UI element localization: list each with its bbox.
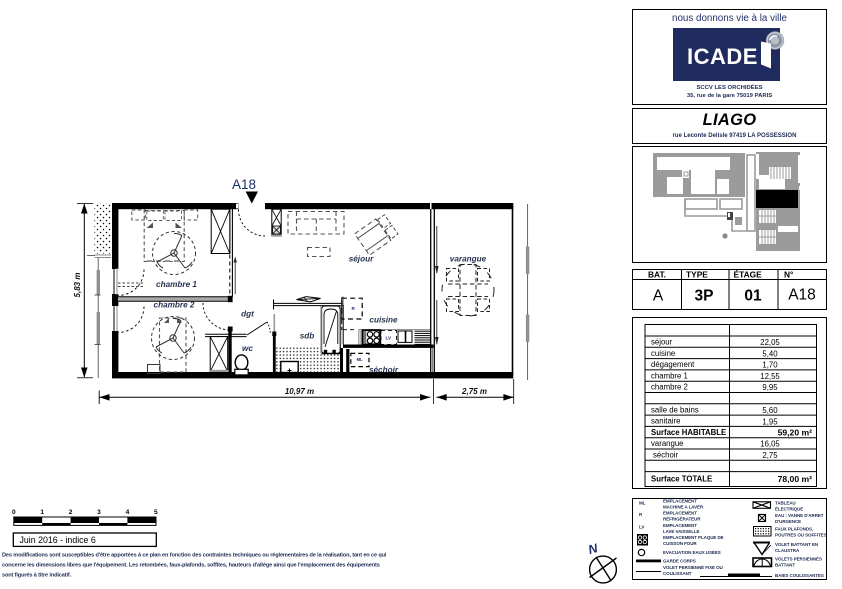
svg-text:sanitaire: sanitaire [651, 417, 680, 426]
svg-text:BAIES COULISSANTES: BAIES COULISSANTES [775, 573, 824, 578]
svg-text:R: R [352, 306, 356, 311]
svg-text:22,05: 22,05 [760, 338, 780, 347]
svg-text:séchoir: séchoir [653, 451, 679, 460]
svg-text:Des modifications sont suscept: Des modifications sont susceptibles d'êt… [2, 553, 387, 559]
svg-text:A18: A18 [788, 287, 816, 304]
svg-text:LAVE VAISSELLE: LAVE VAISSELLE [663, 529, 700, 534]
svg-text:R: R [639, 512, 643, 517]
svg-text:chambre 2: chambre 2 [651, 383, 688, 392]
svg-text:EVACUATION EAUX USÉES: EVACUATION EAUX USÉES [663, 548, 721, 555]
svg-text:chambre 2: chambre 2 [154, 301, 195, 310]
svg-text:ML: ML [357, 357, 363, 362]
svg-text:9,95: 9,95 [762, 383, 778, 392]
svg-text:1,95: 1,95 [762, 417, 778, 426]
svg-text:BATTANT: BATTANT [775, 563, 795, 568]
svg-text:2,75: 2,75 [762, 451, 778, 460]
svg-text:EAU : VANNE D'ARRET: EAU : VANNE D'ARRET [775, 513, 824, 518]
svg-text:3P: 3P [695, 288, 714, 305]
svg-text:varangue: varangue [651, 439, 684, 448]
svg-text:wc: wc [242, 344, 253, 353]
svg-text:concerne les dimensions libres: concerne les dimensions libres que l'équ… [2, 563, 380, 569]
svg-text:chambre 1: chambre 1 [651, 371, 688, 380]
svg-text:EMPLACEMENT PLAQUE DE: EMPLACEMENT PLAQUE DE [663, 535, 724, 540]
svg-text:Surface HABITABLE: Surface HABITABLE [651, 428, 726, 437]
svg-text:LV: LV [386, 336, 392, 341]
svg-text:N°: N° [784, 270, 793, 280]
svg-text:3: 3 [97, 509, 101, 516]
svg-text:salle de bains: salle de bains [651, 405, 699, 414]
svg-text:Juin 2016 - indice 6: Juin 2016 - indice 6 [20, 535, 96, 545]
svg-text:N: N [587, 541, 600, 557]
svg-text:D'URGENCE: D'URGENCE [775, 519, 801, 524]
svg-text:TABLEAU: TABLEAU [775, 501, 796, 506]
svg-text:16,05: 16,05 [760, 440, 780, 449]
svg-text:GARDE CORPS: GARDE CORPS [663, 559, 696, 564]
svg-text:A18: A18 [232, 177, 256, 192]
svg-text:5,60: 5,60 [762, 406, 778, 415]
svg-text:EMPLACEMENT: EMPLACEMENT [663, 510, 697, 515]
svg-text:séchoir: séchoir [369, 366, 399, 375]
svg-text:5: 5 [154, 509, 158, 516]
svg-text:FAUX PLAFONDS,: FAUX PLAFONDS, [775, 527, 813, 532]
svg-text:01: 01 [744, 288, 762, 305]
svg-text:4: 4 [126, 509, 130, 516]
svg-text:VOLETS PERSIENNÉS: VOLETS PERSIENNÉS [775, 555, 822, 562]
svg-text:sont figurés à titre indicatif: sont figurés à titre indicatif. [2, 573, 72, 579]
svg-text:1,70: 1,70 [762, 361, 778, 370]
svg-text:12,55: 12,55 [760, 372, 780, 381]
svg-text:EMPLACEMENT: EMPLACEMENT [663, 499, 697, 504]
svg-text:EMPLACEMENT: EMPLACEMENT [663, 523, 697, 528]
svg-text:VOLET BATTANT EN: VOLET BATTANT EN [775, 542, 818, 547]
svg-text:ÉLECTRIQUE: ÉLECTRIQUE [775, 505, 803, 512]
svg-text:CLAUSTRA: CLAUSTRA [775, 548, 800, 553]
svg-text:séjour: séjour [651, 338, 673, 347]
svg-text:5,83 m: 5,83 m [73, 273, 82, 298]
svg-text:MACHINE A LAVER: MACHINE A LAVER [663, 505, 704, 510]
svg-text:1: 1 [40, 509, 44, 516]
svg-text:A: A [653, 288, 664, 305]
svg-text:10,97 m: 10,97 m [285, 387, 314, 396]
svg-text:78,00 m²: 78,00 m² [778, 474, 813, 484]
svg-text:dégagement: dégagement [651, 360, 695, 369]
svg-text:2,75 m: 2,75 m [461, 387, 487, 396]
svg-text:CUISSON FOUR: CUISSON FOUR [663, 541, 697, 546]
svg-text:cuisine: cuisine [651, 349, 675, 358]
svg-text:2: 2 [69, 509, 73, 516]
svg-text:sdb: sdb [300, 332, 315, 341]
svg-text:0: 0 [12, 509, 16, 516]
svg-text:varangue: varangue [450, 255, 487, 264]
svg-text:5,40: 5,40 [762, 349, 778, 358]
svg-text:dgt: dgt [241, 310, 254, 319]
svg-text:ÉTAGE: ÉTAGE [734, 269, 763, 280]
svg-text:ML: ML [639, 501, 646, 506]
svg-text:Surface TOTALE: Surface TOTALE [651, 475, 712, 484]
svg-text:COULISSANT: COULISSANT [663, 571, 692, 576]
svg-text:59,20 m²: 59,20 m² [778, 427, 813, 437]
svg-text:chambre 1: chambre 1 [156, 280, 197, 289]
svg-text:VOLET PERSIENNÉ FIXE OU: VOLET PERSIENNÉ FIXE OU [663, 563, 723, 570]
svg-text:TYPE: TYPE [686, 270, 708, 280]
svg-text:RÉFRIGÉRATEUR: RÉFRIGÉRATEUR [663, 514, 701, 521]
svg-text:séjour: séjour [349, 255, 374, 264]
svg-text:BAT.: BAT. [648, 270, 666, 280]
svg-text:cuisine: cuisine [369, 316, 398, 325]
svg-text:LV: LV [639, 525, 644, 530]
svg-text:POUTRES OU SOFFITES: POUTRES OU SOFFITES [775, 533, 827, 538]
